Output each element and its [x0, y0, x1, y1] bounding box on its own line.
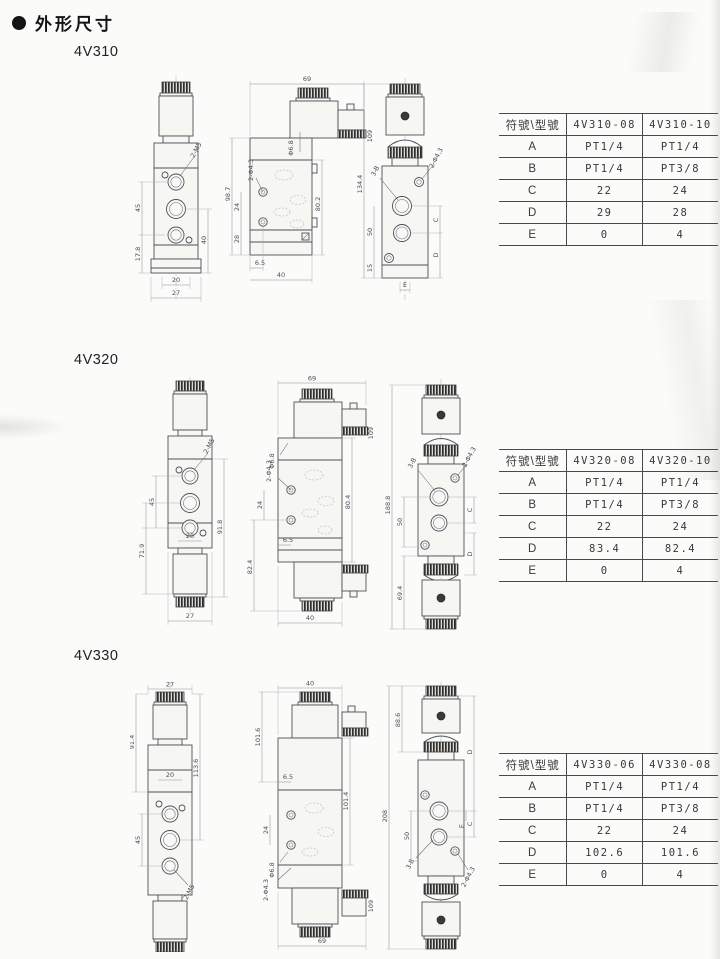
- dim-label: 50: [403, 832, 411, 840]
- table-cell: PT3/8: [642, 494, 718, 516]
- table-cell: PT1/4: [567, 472, 643, 494]
- dim-label: 69: [308, 375, 316, 383]
- side-view: 40 6.5 Φ6.8 2-Φ4.3 101.6 24: [254, 680, 375, 950]
- dim-label: 27: [172, 289, 180, 297]
- din-connector: [338, 110, 364, 130]
- table-cell: A: [499, 136, 567, 158]
- dim-label: 80.4: [344, 495, 352, 509]
- dim-label: 113.6: [192, 759, 200, 778]
- front-view: 2-M5 20 45 71.9 91.8 27: [138, 377, 228, 625]
- profile-view: 3-B 2-Φ4.3 88.6 208 50 D C: [381, 682, 477, 951]
- dim-label: 109: [367, 900, 375, 912]
- table-cell: D: [499, 538, 567, 560]
- table-cell: PT3/8: [642, 158, 718, 180]
- table-cell: 101.6: [642, 842, 718, 864]
- table-cell: B: [499, 158, 567, 180]
- table-header-cell: 4V330-08: [642, 754, 718, 776]
- din-connector: [342, 573, 366, 591]
- table-cell: 0: [567, 224, 643, 246]
- dim-label: 69.4: [396, 586, 404, 600]
- dim-label: 98.7: [224, 187, 232, 201]
- table-cell: 4: [642, 224, 718, 246]
- model-heading-4v330: 4V330: [74, 648, 118, 664]
- page-title: 外形尺寸: [35, 10, 115, 35]
- dim-label: 24: [233, 203, 241, 211]
- model-heading-4v310: 4V310: [74, 44, 118, 60]
- dim-label: C: [466, 821, 474, 826]
- table-cell: D: [499, 842, 567, 864]
- profile-view: 3-B 2-Φ4.3 134.4 50 15 C D E: [356, 78, 445, 300]
- dimension-drawing-4v330: 27 20 2-M5 91.4 45: [130, 680, 480, 952]
- model-heading-4v320: 4V320: [74, 352, 118, 368]
- table-cell: 0: [567, 560, 643, 582]
- dim-label: 80.2: [314, 197, 322, 211]
- solenoid-coil: [153, 705, 187, 739]
- dim-label: Φ6.8: [268, 862, 276, 877]
- table-cell: 0: [567, 864, 643, 886]
- dim-label: 188.8: [384, 496, 392, 515]
- side-view: 69 109 Φ6.8 2-Φ4.3: [224, 75, 374, 283]
- table-cell: 22: [567, 516, 643, 538]
- dim-label: D: [432, 252, 440, 257]
- coil-screw: [401, 112, 409, 120]
- table-cell: C: [499, 820, 567, 842]
- dim-label: D: [466, 551, 474, 556]
- table-cell: 28: [642, 202, 718, 224]
- table-cell: C: [499, 516, 567, 538]
- page-header: 外形尺寸: [12, 10, 115, 35]
- scan-artifact: [0, 414, 70, 440]
- front-view: 27 20 2-M5 91.4 45: [130, 681, 204, 953]
- dim-label: 2-Φ4.3: [265, 460, 273, 482]
- table-cell: PT1/4: [567, 494, 643, 516]
- table-cell: 4: [642, 864, 718, 886]
- dim-label: 40: [306, 680, 314, 688]
- table-cell: A: [499, 776, 567, 798]
- table-cell: 83.4: [567, 538, 643, 560]
- profile-view: 3-B 2-Φ4.3 188.8 50 69.4 C D: [384, 379, 478, 631]
- table-cell: 22: [567, 820, 643, 842]
- din-connector: [342, 898, 366, 916]
- dim-label: 91.4: [130, 735, 136, 749]
- table-cell: PT1/4: [567, 776, 643, 798]
- dim-label: 40: [306, 614, 314, 622]
- table-cell: 24: [642, 516, 718, 538]
- dim-label: 208: [381, 810, 389, 822]
- dim-label: 27: [166, 681, 174, 689]
- solenoid-block: [292, 888, 338, 924]
- dim-label: 15: [366, 264, 374, 272]
- dim-label: 45: [148, 498, 156, 506]
- table-cell: 102.6: [567, 842, 643, 864]
- solenoid-block: [294, 402, 342, 438]
- dim-label: D: [466, 749, 474, 754]
- dim-label: 134.4: [356, 175, 364, 194]
- dim-label: 40: [200, 236, 208, 244]
- table-cell: 4: [642, 560, 718, 582]
- dim-label: 82.4: [246, 560, 254, 574]
- scan-artifact: [520, 12, 720, 72]
- table-cell: PT3/8: [642, 798, 718, 820]
- dim-label: 45: [134, 204, 142, 212]
- dim-label: 24: [256, 501, 264, 509]
- port-circle: [168, 174, 184, 190]
- dim-label: 20: [186, 532, 194, 540]
- table-cell: B: [499, 798, 567, 820]
- table-cell: B: [499, 494, 567, 516]
- table-cell: E: [499, 864, 567, 886]
- dim-label: C: [432, 217, 440, 222]
- dim-label: 50: [366, 228, 374, 236]
- din-connector: [342, 409, 366, 427]
- table-cell: 24: [642, 180, 718, 202]
- dimension-table-4v320: 符號\型號 4V320-08 4V320-10 APT1/4PT1/4 BPT1…: [499, 449, 718, 582]
- bullet-icon: [12, 16, 26, 30]
- dim-label: E: [403, 281, 407, 289]
- dimension-table-4v310: 符號\型號 4V310-08 4V310-10 APT1/4PT1/4 BPT1…: [499, 113, 718, 246]
- table-cell: PT1/4: [567, 158, 643, 180]
- solenoid-coil: [173, 554, 207, 594]
- dim-label: 50: [396, 518, 404, 526]
- solenoid-coil: [159, 96, 193, 136]
- dim-label: 101.4: [342, 792, 350, 811]
- din-connector: [342, 712, 366, 728]
- side-view: 69 109 Φ6.8 2-Φ4.3 24 8: [246, 375, 375, 627]
- dim-label: 91.8: [216, 520, 224, 534]
- dim-label: 28: [233, 235, 241, 243]
- table-header-cell: 4V310-08: [567, 114, 643, 136]
- table-cell: A: [499, 472, 567, 494]
- dim-label: 17.8: [134, 247, 142, 261]
- dim-label: 20: [172, 276, 180, 284]
- table-cell: PT1/4: [642, 136, 718, 158]
- table-cell: PT1/4: [567, 798, 643, 820]
- table-header-cell: 4V310-10: [642, 114, 718, 136]
- valve-body: [250, 138, 312, 255]
- table-cell: 29: [567, 202, 643, 224]
- solenoid-coil: [173, 394, 207, 430]
- dim-label-ports: 3-B: [404, 857, 416, 870]
- dim-label: 71.9: [138, 544, 146, 558]
- table-header-cell: 4V320-10: [642, 450, 718, 472]
- dim-label: 69: [318, 937, 326, 945]
- solenoid-coil: [153, 901, 187, 939]
- dim-label: 109: [367, 427, 375, 439]
- dim-label: 2-Φ4.3: [262, 879, 270, 901]
- dim-label: 109: [366, 130, 374, 142]
- solenoid-block: [292, 705, 338, 738]
- table-header-cell: 符號\型號: [499, 450, 567, 472]
- table-cell: PT1/4: [642, 776, 718, 798]
- table-header-cell: 符號\型號: [499, 754, 567, 776]
- dim-label-mount: 2-Φ4.3: [428, 146, 445, 169]
- dim-label: Φ6.8: [287, 140, 295, 155]
- table-cell: C: [499, 180, 567, 202]
- table-cell: 82.4: [642, 538, 718, 560]
- table-cell: D: [499, 202, 567, 224]
- front-view: 2-M5 45 17.8 40 20 27: [134, 76, 212, 302]
- table-header-cell: 符號\型號: [499, 114, 567, 136]
- table-cell: E: [499, 560, 567, 582]
- dim-label: 6.5: [255, 259, 265, 267]
- dim-label: 101.6: [254, 728, 262, 747]
- dim-label-ports: 3-B: [369, 164, 381, 177]
- dimension-table-4v330: 符號\型號 4V330-06 4V330-08 APT1/4PT1/4 BPT1…: [499, 753, 718, 886]
- dim-label: 45: [134, 836, 142, 844]
- dim-label: 6.5: [283, 773, 293, 781]
- table-cell: E: [499, 224, 567, 246]
- table-cell: PT1/4: [642, 472, 718, 494]
- dim-label: 69: [303, 75, 311, 83]
- catalog-page: 外形尺寸 4V310 2-M5 45: [0, 0, 720, 959]
- dimension-drawing-4v320: 2-M5 20 45 71.9 91.8 27 69: [130, 375, 480, 633]
- dimension-drawing-4v310: 2-M5 45 17.8 40 20 27 69: [132, 72, 482, 307]
- dim-label: 20: [166, 771, 174, 779]
- dim-label-ports: 3-B: [406, 456, 418, 469]
- table-cell: PT1/4: [567, 136, 643, 158]
- dim-label-mount: 2-Φ4.3: [461, 445, 478, 468]
- dim-label: 2-Φ4.3: [247, 159, 255, 181]
- table-header-cell: 4V320-08: [567, 450, 643, 472]
- solenoid-block: [294, 562, 342, 598]
- pilot-hole: [162, 172, 168, 178]
- table-cell: 24: [642, 820, 718, 842]
- dim-label: C: [466, 507, 474, 512]
- dim-label: 27: [186, 612, 194, 620]
- table-header-cell: 4V330-06: [567, 754, 643, 776]
- dim-label: 88.6: [394, 713, 402, 727]
- dim-label: 6.5: [283, 536, 293, 544]
- dim-label: 24: [262, 826, 270, 834]
- dim-label: E: [458, 824, 466, 828]
- table-cell: 22: [567, 180, 643, 202]
- dim-label: 40: [277, 271, 285, 279]
- solenoid-block: [290, 101, 338, 138]
